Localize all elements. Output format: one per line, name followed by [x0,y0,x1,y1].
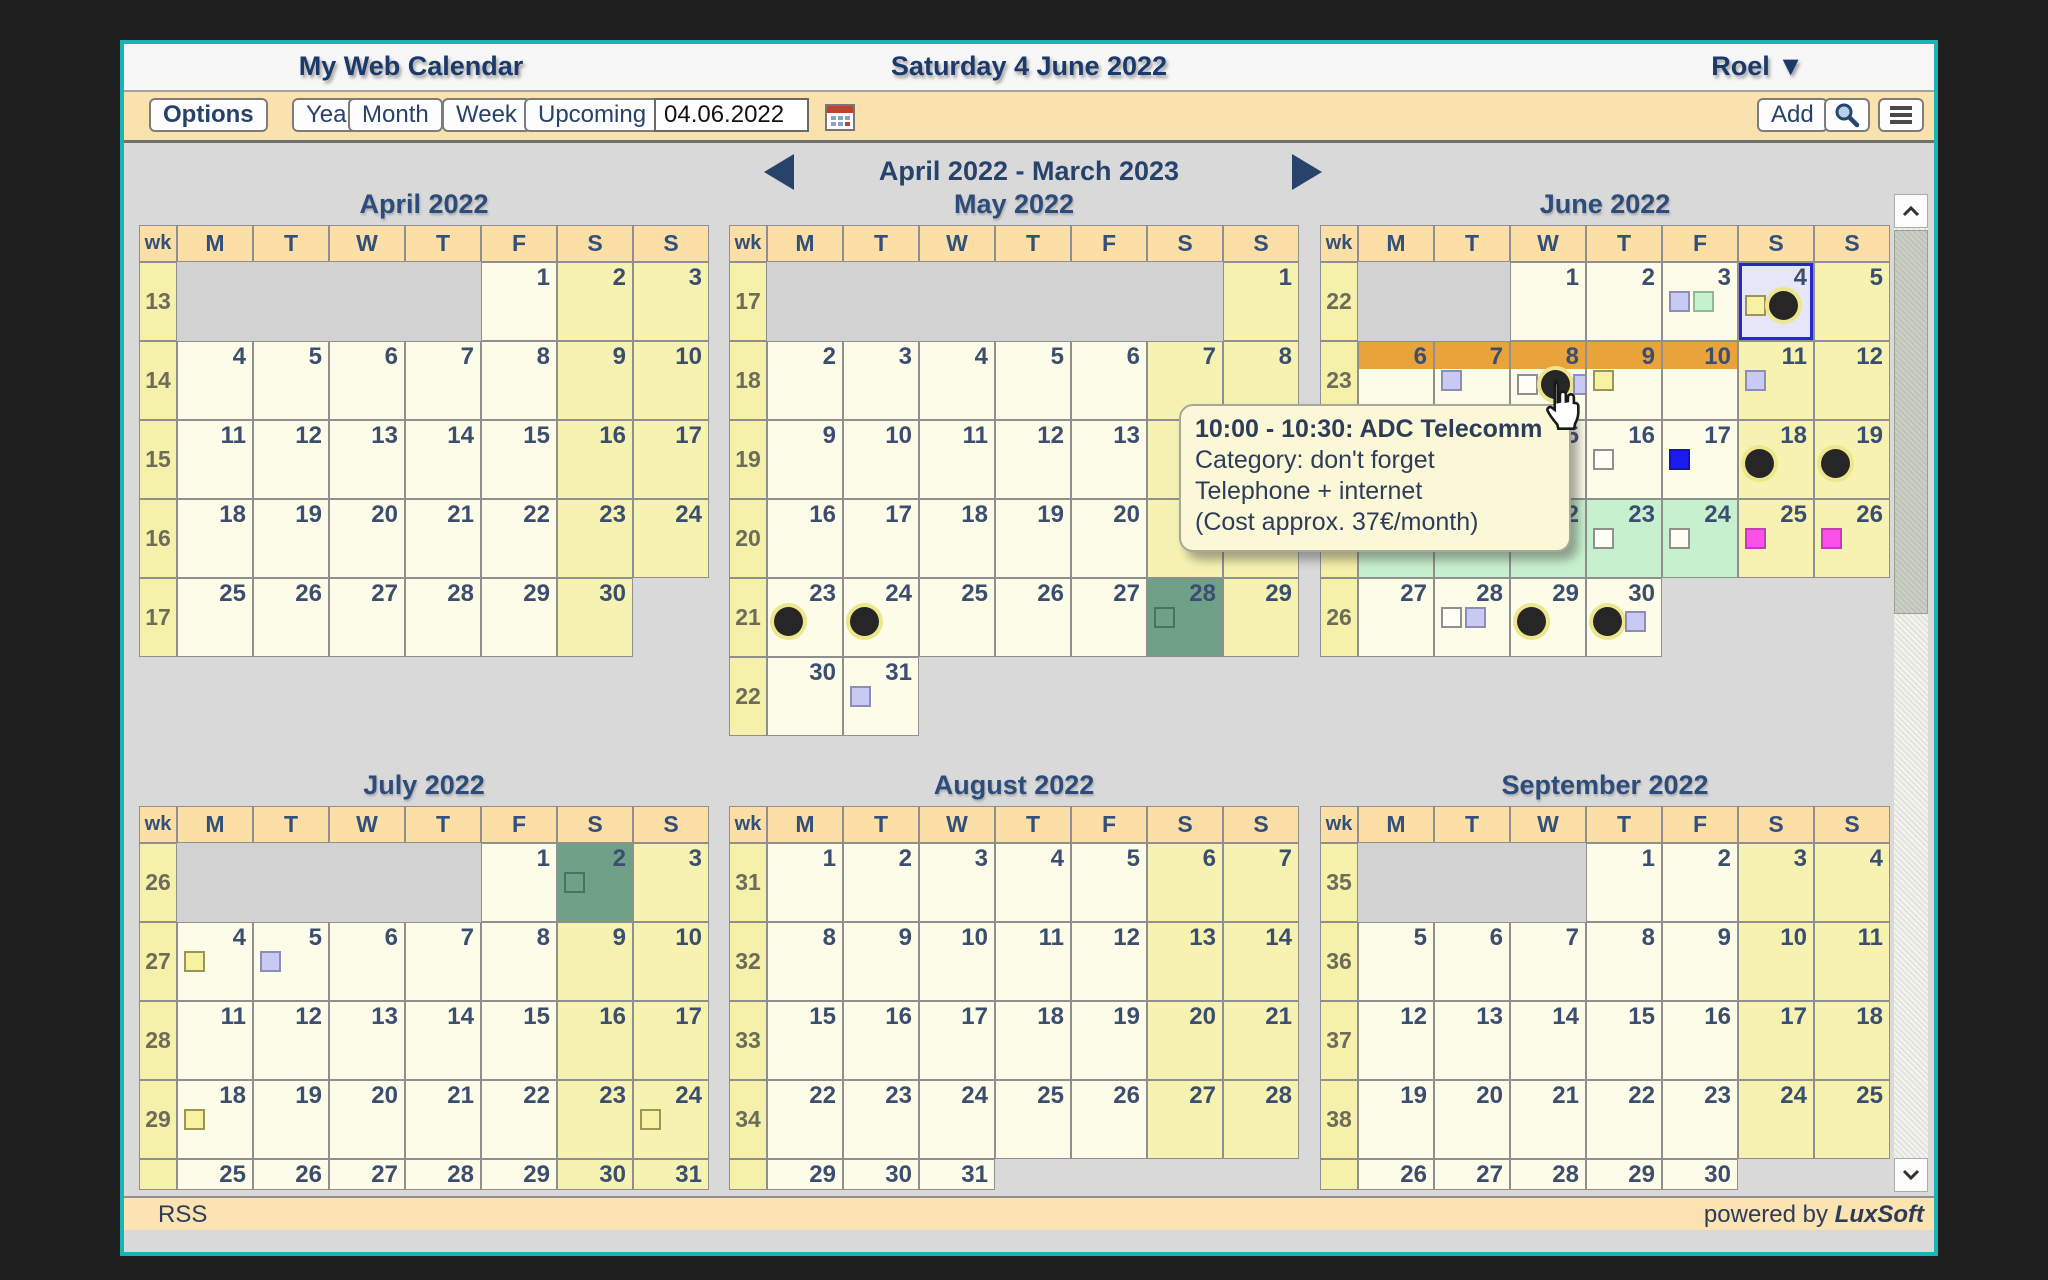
day-cell-july-29[interactable]: 29 [481,1159,557,1190]
day-cell-september-21[interactable]: 21 [1510,1080,1586,1159]
event-dot-black[interactable] [1593,607,1622,636]
day-cell-august-11[interactable]: 11 [995,922,1071,1001]
month-view-button[interactable]: Month [348,98,443,132]
day-cell-june-30[interactable]: 30 [1586,578,1662,657]
event-square-ivory[interactable] [1593,449,1614,470]
week-number[interactable]: 14 [139,341,177,420]
day-cell-may-5[interactable]: 5 [995,341,1071,420]
day-cell-september-13[interactable]: 13 [1434,1001,1510,1080]
event-square-lav[interactable] [1625,611,1646,632]
day-cell-september-16[interactable]: 16 [1662,1001,1738,1080]
day-cell-july-22[interactable]: 22 [481,1080,557,1159]
day-number: 2 [899,845,912,873]
day-number: 13 [1113,422,1140,450]
event-square-yellow[interactable] [640,1109,661,1130]
day-cell-september-17[interactable]: 17 [1738,1001,1814,1080]
day-number: 2 [1642,264,1655,292]
week-number[interactable]: 35 [1320,843,1358,922]
day-cell-april-1[interactable]: 1 [481,262,557,341]
menu-button[interactable] [1878,98,1924,132]
day-number: 12 [295,422,322,450]
day-cell-september-3[interactable]: 3 [1738,843,1814,922]
day-cell-june-25[interactable]: 25 [1738,499,1814,578]
week-number[interactable]: 22 [729,657,767,736]
event-square-ivory[interactable] [1441,607,1462,628]
event-square-blue[interactable] [1669,449,1690,470]
day-cell-june-29[interactable]: 29 [1510,578,1586,657]
day-cell-august-3[interactable]: 3 [919,843,995,922]
day-cell-may-25[interactable]: 25 [919,578,995,657]
event-dot-black[interactable] [1769,291,1798,320]
day-number: 24 [675,1082,702,1110]
weekday-header: F [481,225,557,262]
week-view-button[interactable]: Week [442,98,531,132]
day-cell-june-1[interactable]: 1 [1510,262,1586,341]
day-cell-may-3[interactable]: 3 [843,341,919,420]
week-number[interactable]: 32 [729,922,767,1001]
day-cell-september-11[interactable]: 11 [1814,922,1890,1001]
day-cell-june-24[interactable]: 24 [1662,499,1738,578]
day-cell-july-20[interactable]: 20 [329,1080,405,1159]
day-cell-july-19[interactable]: 19 [253,1080,329,1159]
day-cell-april-21[interactable]: 21 [405,499,481,578]
day-cell-september-29[interactable]: 29 [1586,1159,1662,1190]
day-cell-april-13[interactable]: 13 [329,420,405,499]
day-cell-april-23[interactable]: 23 [557,499,633,578]
day-cell-september-7[interactable]: 7 [1510,922,1586,1001]
day-number: 29 [1628,1161,1655,1189]
day-cell-may-10[interactable]: 10 [843,420,919,499]
event-square-ivory[interactable] [1669,528,1690,549]
day-cell-may-28[interactable]: 28 [1147,578,1223,657]
day-number: 29 [809,1161,836,1189]
day-number: 28 [1476,580,1503,608]
day-cell-september-26[interactable]: 26 [1358,1159,1434,1190]
day-cell-may-31[interactable]: 31 [843,657,919,736]
week-number[interactable]: 37 [1320,1001,1358,1080]
day-cell-august-17[interactable]: 17 [919,1001,995,1080]
day-cell-august-19[interactable]: 19 [1071,1001,1147,1080]
day-cell-june-12[interactable]: 12 [1814,341,1890,420]
day-cell-july-26[interactable]: 26 [253,1159,329,1190]
week-number[interactable]: 13 [139,262,177,341]
day-cell-may-18[interactable]: 18 [919,499,995,578]
day-number: 7 [1490,343,1503,371]
day-cell-may-24[interactable]: 24 [843,578,919,657]
empty-cell [1738,578,1814,657]
vertical-scrollbar[interactable] [1894,194,1928,1192]
day-number: 24 [1704,501,1731,529]
event-dot-black[interactable] [1821,449,1850,478]
event-square-lav[interactable] [1669,291,1690,312]
day-cell-may-20[interactable]: 20 [1071,499,1147,578]
day-cell-april-5[interactable]: 5 [253,341,329,420]
day-cell-august-8[interactable]: 8 [767,922,843,1001]
event-square-yellow[interactable] [1593,370,1614,391]
week-number[interactable]: 18 [729,341,767,420]
day-cell-july-10[interactable]: 10 [633,922,709,1001]
day-cell-july-30[interactable]: 30 [557,1159,633,1190]
event-square-ivory[interactable] [1517,374,1538,395]
day-cell-april-22[interactable]: 22 [481,499,557,578]
day-cell-april-15[interactable]: 15 [481,420,557,499]
week-number[interactable]: 38 [1320,1080,1358,1159]
day-number: 30 [809,659,836,687]
day-cell-may-26[interactable]: 26 [995,578,1071,657]
day-number: 17 [1780,1003,1807,1031]
day-cell-may-16[interactable]: 16 [767,499,843,578]
upcoming-view-button[interactable]: Upcoming [524,98,660,132]
event-square-yellow[interactable] [184,1109,205,1130]
weekday-header: T [1434,806,1510,843]
day-cell-august-2[interactable]: 2 [843,843,919,922]
day-cell-august-25[interactable]: 25 [995,1080,1071,1159]
day-cell-july-27[interactable]: 27 [329,1159,405,1190]
day-cell-july-24[interactable]: 24 [633,1080,709,1159]
chevron-down-icon: ▼ [1777,51,1804,81]
day-cell-june-3[interactable]: 3 [1662,262,1738,341]
day-cell-april-7[interactable]: 7 [405,341,481,420]
day-cell-september-9[interactable]: 9 [1662,922,1738,1001]
day-cell-august-24[interactable]: 24 [919,1080,995,1159]
day-cell-august-27[interactable]: 27 [1147,1080,1223,1159]
event-dot-black[interactable] [774,607,803,636]
day-number: 15 [523,1003,550,1031]
day-cell-april-2[interactable]: 2 [557,262,633,341]
day-cell-august-28[interactable]: 28 [1223,1080,1299,1159]
day-cell-july-12[interactable]: 12 [253,1001,329,1080]
empty-cell [1223,1159,1299,1190]
empty-cell [177,262,253,341]
day-cell-april-11[interactable]: 11 [177,420,253,499]
day-cell-may-19[interactable]: 19 [995,499,1071,578]
day-cell-september-25[interactable]: 25 [1814,1080,1890,1159]
day-number: 23 [1628,501,1655,529]
day-cell-august-9[interactable]: 9 [843,922,919,1001]
event-square-green[interactable] [1693,291,1714,312]
day-cell-august-30[interactable]: 30 [843,1159,919,1190]
empty-cell [1662,578,1738,657]
month-april-2022: April 2022wkMTWTFSS131231445678910151112… [139,189,709,657]
day-cell-may-1[interactable]: 1 [1223,262,1299,341]
day-cell-august-20[interactable]: 20 [1147,1001,1223,1080]
day-cell-may-6[interactable]: 6 [1071,341,1147,420]
week-number[interactable]: 29 [139,1080,177,1159]
week-number[interactable]: 31 [729,843,767,922]
day-cell-september-19[interactable]: 19 [1358,1080,1434,1159]
week-number[interactable]: 15 [139,420,177,499]
day-cell-april-4[interactable]: 4 [177,341,253,420]
day-cell-may-23[interactable]: 23 [767,578,843,657]
day-cell-april-17[interactable]: 17 [633,420,709,499]
day-cell-april-30[interactable]: 30 [557,578,633,657]
day-cell-september-30[interactable]: 30 [1662,1159,1738,1190]
day-cell-june-10[interactable]: 10 [1662,341,1738,420]
day-cell-july-8[interactable]: 8 [481,922,557,1001]
month-grid: wkMTWTFSS2612327456789102811121314151617… [139,806,709,1190]
add-event-button[interactable]: Add [1757,98,1828,132]
day-cell-august-12[interactable]: 12 [1071,922,1147,1001]
day-cell-august-29[interactable]: 29 [767,1159,843,1190]
search-button[interactable] [1824,98,1870,132]
week-number[interactable]: 27 [139,922,177,1001]
day-number: 18 [219,501,246,529]
day-cell-august-31[interactable]: 31 [919,1159,995,1190]
week-number[interactable]: 36 [1320,922,1358,1001]
day-cell-july-23[interactable]: 23 [557,1080,633,1159]
day-number: 26 [1037,580,1064,608]
day-cell-april-26[interactable]: 26 [253,578,329,657]
day-cell-june-4[interactable]: 4 [1738,262,1814,341]
day-cell-august-6[interactable]: 6 [1147,843,1223,922]
day-cell-april-12[interactable]: 12 [253,420,329,499]
day-cell-september-20[interactable]: 20 [1434,1080,1510,1159]
day-number: 26 [1400,1161,1427,1189]
day-number: 12 [295,1003,322,1031]
event-square-yellow[interactable] [184,951,205,972]
weekday-header: S [1814,806,1890,843]
day-cell-august-10[interactable]: 10 [919,922,995,1001]
day-cell-july-9[interactable]: 9 [557,922,633,1001]
day-number: 6 [1127,343,1140,371]
rss-link[interactable]: RSS [158,1201,207,1229]
event-dot-black[interactable] [850,607,879,636]
day-cell-june-17[interactable]: 17 [1662,420,1738,499]
day-cell-august-5[interactable]: 5 [1071,843,1147,922]
day-cell-may-13[interactable]: 13 [1071,420,1147,499]
day-number: 18 [1037,1003,1064,1031]
day-cell-may-11[interactable]: 11 [919,420,995,499]
day-cell-july-21[interactable]: 21 [405,1080,481,1159]
day-cell-september-22[interactable]: 22 [1586,1080,1662,1159]
day-cell-september-23[interactable]: 23 [1662,1080,1738,1159]
day-cell-july-25[interactable]: 25 [177,1159,253,1190]
day-cell-june-27[interactable]: 27 [1358,578,1434,657]
day-number: 4 [1794,264,1807,292]
day-cell-june-2[interactable]: 2 [1586,262,1662,341]
day-cell-september-6[interactable]: 6 [1434,922,1510,1001]
week-number[interactable]: 26 [1320,578,1358,657]
event-square-magenta[interactable] [1745,528,1766,549]
day-number: 10 [885,422,912,450]
weekday-header: T [1586,806,1662,843]
day-cell-august-16[interactable]: 16 [843,1001,919,1080]
day-cell-april-19[interactable]: 19 [253,499,329,578]
day-cell-september-14[interactable]: 14 [1510,1001,1586,1080]
day-cell-july-6[interactable]: 6 [329,922,405,1001]
day-cell-april-24[interactable]: 24 [633,499,709,578]
day-cell-may-4[interactable]: 4 [919,341,995,420]
weekday-header: T [995,225,1071,262]
day-cell-september-12[interactable]: 12 [1358,1001,1434,1080]
month-july-2022: July 2022wkMTWTFSS2612327456789102811121… [139,770,709,1190]
day-cell-september-5[interactable]: 5 [1358,922,1434,1001]
day-number: 13 [1189,924,1216,952]
day-cell-august-18[interactable]: 18 [995,1001,1071,1080]
day-cell-april-14[interactable]: 14 [405,420,481,499]
scroll-down-button[interactable] [1894,1158,1928,1192]
week-number[interactable]: 21 [729,578,767,657]
date-input[interactable] [654,98,809,132]
day-cell-june-19[interactable]: 19 [1814,420,1890,499]
day-cell-september-2[interactable]: 2 [1662,843,1738,922]
day-cell-april-28[interactable]: 28 [405,578,481,657]
week-number[interactable]: 26 [139,843,177,922]
day-cell-may-12[interactable]: 12 [995,420,1071,499]
day-cell-july-15[interactable]: 15 [481,1001,557,1080]
day-cell-july-17[interactable]: 17 [633,1001,709,1080]
day-cell-july-7[interactable]: 7 [405,922,481,1001]
day-cell-april-18[interactable]: 18 [177,499,253,578]
empty-cell [919,657,995,736]
week-number[interactable]: 33 [729,1001,767,1080]
day-cell-april-3[interactable]: 3 [633,262,709,341]
day-cell-may-30[interactable]: 30 [767,657,843,736]
month-grid: wkMTWTFSS3112345673289101112131433151617… [729,806,1299,1190]
day-cell-september-28[interactable]: 28 [1510,1159,1586,1190]
empty-cell [843,262,919,341]
day-number: 5 [309,343,322,371]
day-cell-april-10[interactable]: 10 [633,341,709,420]
options-button[interactable]: Options [149,98,268,132]
current-date-title: Saturday 4 June 2022 [124,51,1934,82]
day-cell-june-11[interactable]: 11 [1738,341,1814,420]
day-cell-june-28[interactable]: 28 [1434,578,1510,657]
day-cell-july-2[interactable]: 2 [557,843,633,922]
day-cell-august-4[interactable]: 4 [995,843,1071,922]
day-cell-june-18[interactable]: 18 [1738,420,1814,499]
day-cell-july-31[interactable]: 31 [633,1159,709,1190]
day-cell-may-9[interactable]: 9 [767,420,843,499]
week-number[interactable]: 17 [729,262,767,341]
month-grid: wkMTWTFSS1312314456789101511121314151617… [139,225,709,657]
event-dot-black[interactable] [1517,607,1546,636]
day-number: 26 [295,580,322,608]
day-cell-june-16[interactable]: 16 [1586,420,1662,499]
day-cell-may-17[interactable]: 17 [843,499,919,578]
day-cell-august-13[interactable]: 13 [1147,922,1223,1001]
day-cell-july-13[interactable]: 13 [329,1001,405,1080]
event-square-yellow[interactable] [1745,295,1766,316]
week-number[interactable]: 19 [729,420,767,499]
day-cell-september-15[interactable]: 15 [1586,1001,1662,1080]
day-cell-september-8[interactable]: 8 [1586,922,1662,1001]
day-cell-april-20[interactable]: 20 [329,499,405,578]
day-number: 7 [1279,845,1292,873]
day-cell-september-10[interactable]: 10 [1738,922,1814,1001]
day-cell-august-15[interactable]: 15 [767,1001,843,1080]
day-cell-july-14[interactable]: 14 [405,1001,481,1080]
weekday-header: T [843,225,919,262]
week-number[interactable]: 34 [729,1080,767,1159]
event-square-tealsq[interactable] [564,872,585,893]
day-cell-july-18[interactable]: 18 [177,1080,253,1159]
week-number[interactable]: 16 [139,499,177,578]
day-cell-july-16[interactable]: 16 [557,1001,633,1080]
week-col-header: wk [139,806,177,843]
day-cell-august-26[interactable]: 26 [1071,1080,1147,1159]
day-cell-august-22[interactable]: 22 [767,1080,843,1159]
event-square-ivory[interactable] [1593,528,1614,549]
day-cell-june-5[interactable]: 5 [1814,262,1890,341]
day-number: 25 [961,580,988,608]
day-number: 28 [447,1161,474,1189]
event-square-lav[interactable] [260,951,281,972]
weekday-header: T [405,225,481,262]
day-cell-april-9[interactable]: 9 [557,341,633,420]
day-cell-august-1[interactable]: 1 [767,843,843,922]
day-cell-april-27[interactable]: 27 [329,578,405,657]
day-number: 30 [599,1161,626,1189]
day-number: 15 [523,422,550,450]
day-cell-september-1[interactable]: 1 [1586,843,1662,922]
event-square-lav[interactable] [850,686,871,707]
day-cell-may-27[interactable]: 27 [1071,578,1147,657]
event-square-lav[interactable] [1745,370,1766,391]
day-cell-september-27[interactable]: 27 [1434,1159,1510,1190]
event-dot-black[interactable] [1745,449,1774,478]
week-number[interactable]: 20 [729,499,767,578]
day-cell-june-9[interactable]: 9 [1586,341,1662,420]
event-markers [1593,528,1614,549]
event-square-lav[interactable] [1441,370,1462,391]
day-cell-july-4[interactable]: 4 [177,922,253,1001]
day-cell-may-2[interactable]: 2 [767,341,843,420]
day-cell-june-26[interactable]: 26 [1814,499,1890,578]
day-cell-july-28[interactable]: 28 [405,1159,481,1190]
day-cell-august-23[interactable]: 23 [843,1080,919,1159]
day-cell-may-29[interactable]: 29 [1223,578,1299,657]
day-cell-april-16[interactable]: 16 [557,420,633,499]
day-cell-september-24[interactable]: 24 [1738,1080,1814,1159]
day-cell-june-23[interactable]: 23 [1586,499,1662,578]
day-cell-july-11[interactable]: 11 [177,1001,253,1080]
next-range-arrow[interactable] [1292,154,1322,190]
day-number: 12 [1037,422,1064,450]
day-cell-august-7[interactable]: 7 [1223,843,1299,922]
day-cell-april-8[interactable]: 8 [481,341,557,420]
day-number: 16 [809,501,836,529]
day-cell-april-25[interactable]: 25 [177,578,253,657]
day-number: 18 [961,501,988,529]
day-cell-april-29[interactable]: 29 [481,578,557,657]
day-cell-august-21[interactable]: 21 [1223,1001,1299,1080]
day-cell-july-1[interactable]: 1 [481,843,557,922]
day-cell-july-3[interactable]: 3 [633,843,709,922]
event-square-tealsq[interactable] [1154,607,1175,628]
event-markers [1745,370,1766,391]
week-number[interactable]: 28 [139,1001,177,1080]
day-number: 27 [1476,1161,1503,1189]
scroll-up-button[interactable] [1894,194,1928,228]
day-number: 10 [1704,343,1731,371]
weekday-header: W [329,806,405,843]
day-cell-september-18[interactable]: 18 [1814,1001,1890,1080]
event-markers [774,607,803,636]
event-square-lav[interactable] [1465,607,1486,628]
day-cell-april-6[interactable]: 6 [329,341,405,420]
date-picker-icon[interactable] [824,100,856,132]
event-square-magenta[interactable] [1821,528,1842,549]
day-cell-september-4[interactable]: 4 [1814,843,1890,922]
day-cell-july-5[interactable]: 5 [253,922,329,1001]
day-cell-august-14[interactable]: 14 [1223,922,1299,1001]
user-menu[interactable]: Roel ▼ [1711,51,1804,82]
scrollbar-thumb[interactable] [1894,230,1928,614]
day-number: 29 [1265,580,1292,608]
week-number[interactable]: 22 [1320,262,1358,341]
week-number[interactable]: 17 [139,578,177,657]
